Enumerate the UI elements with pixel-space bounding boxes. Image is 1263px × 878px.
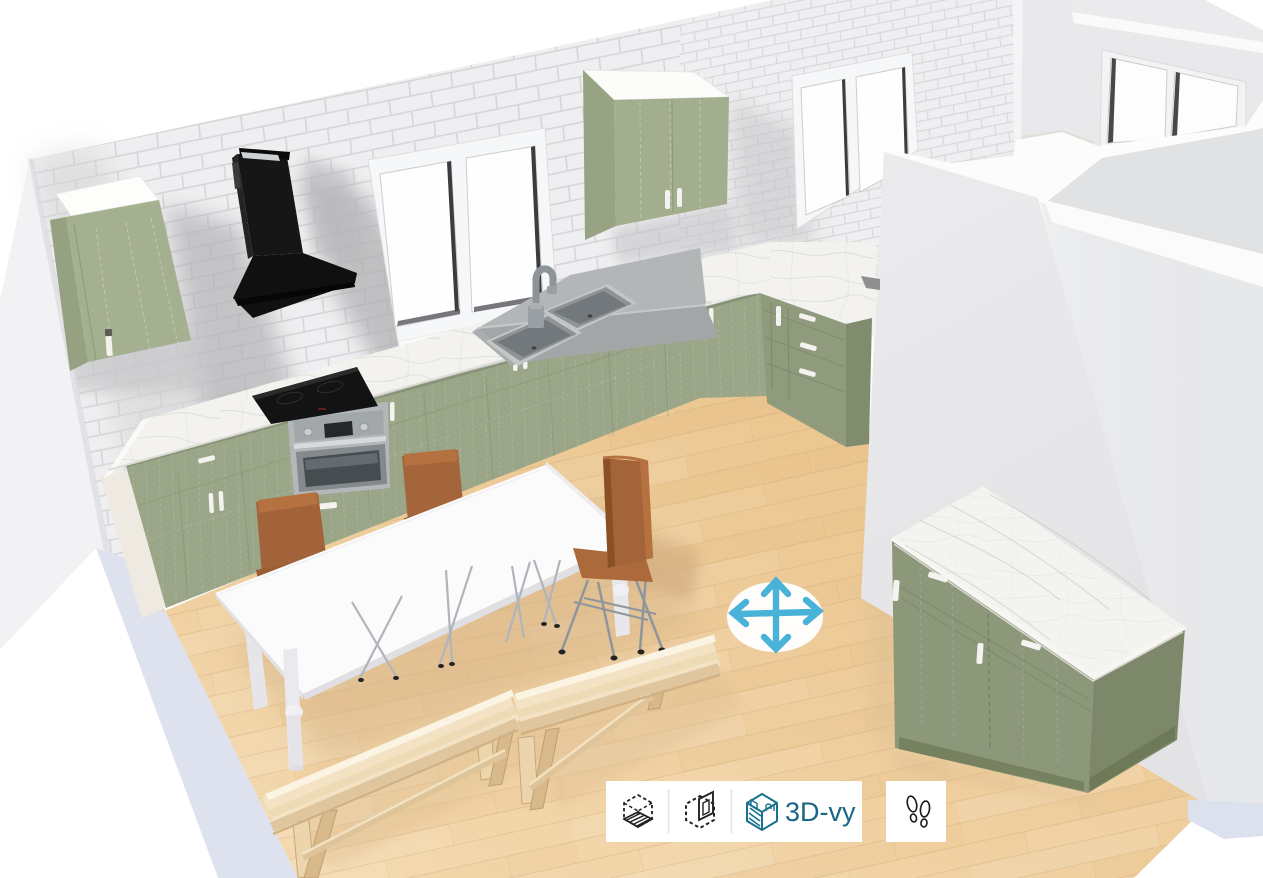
svg-text:3D-vy: 3D-vy: [785, 797, 856, 827]
